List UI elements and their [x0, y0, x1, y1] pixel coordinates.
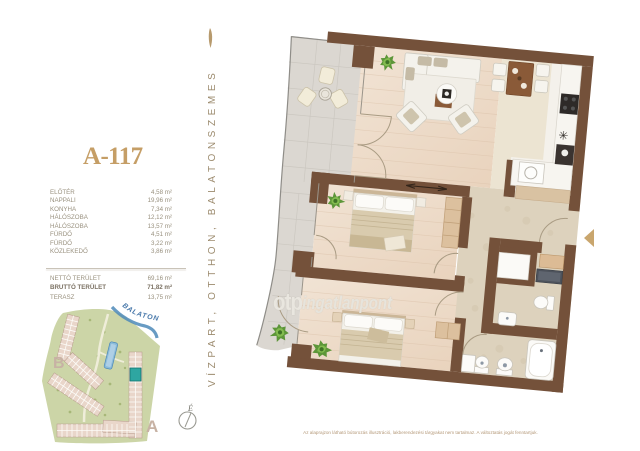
- svg-text:É: É: [187, 403, 193, 413]
- svg-text:VÍZPART, OTTHON, BALATONSZEMES: VÍZPART, OTTHON, BALATONSZEMES: [205, 69, 218, 387]
- svg-text:✳: ✳: [558, 128, 569, 143]
- svg-text:B: B: [53, 355, 65, 372]
- svg-text:A: A: [146, 417, 158, 436]
